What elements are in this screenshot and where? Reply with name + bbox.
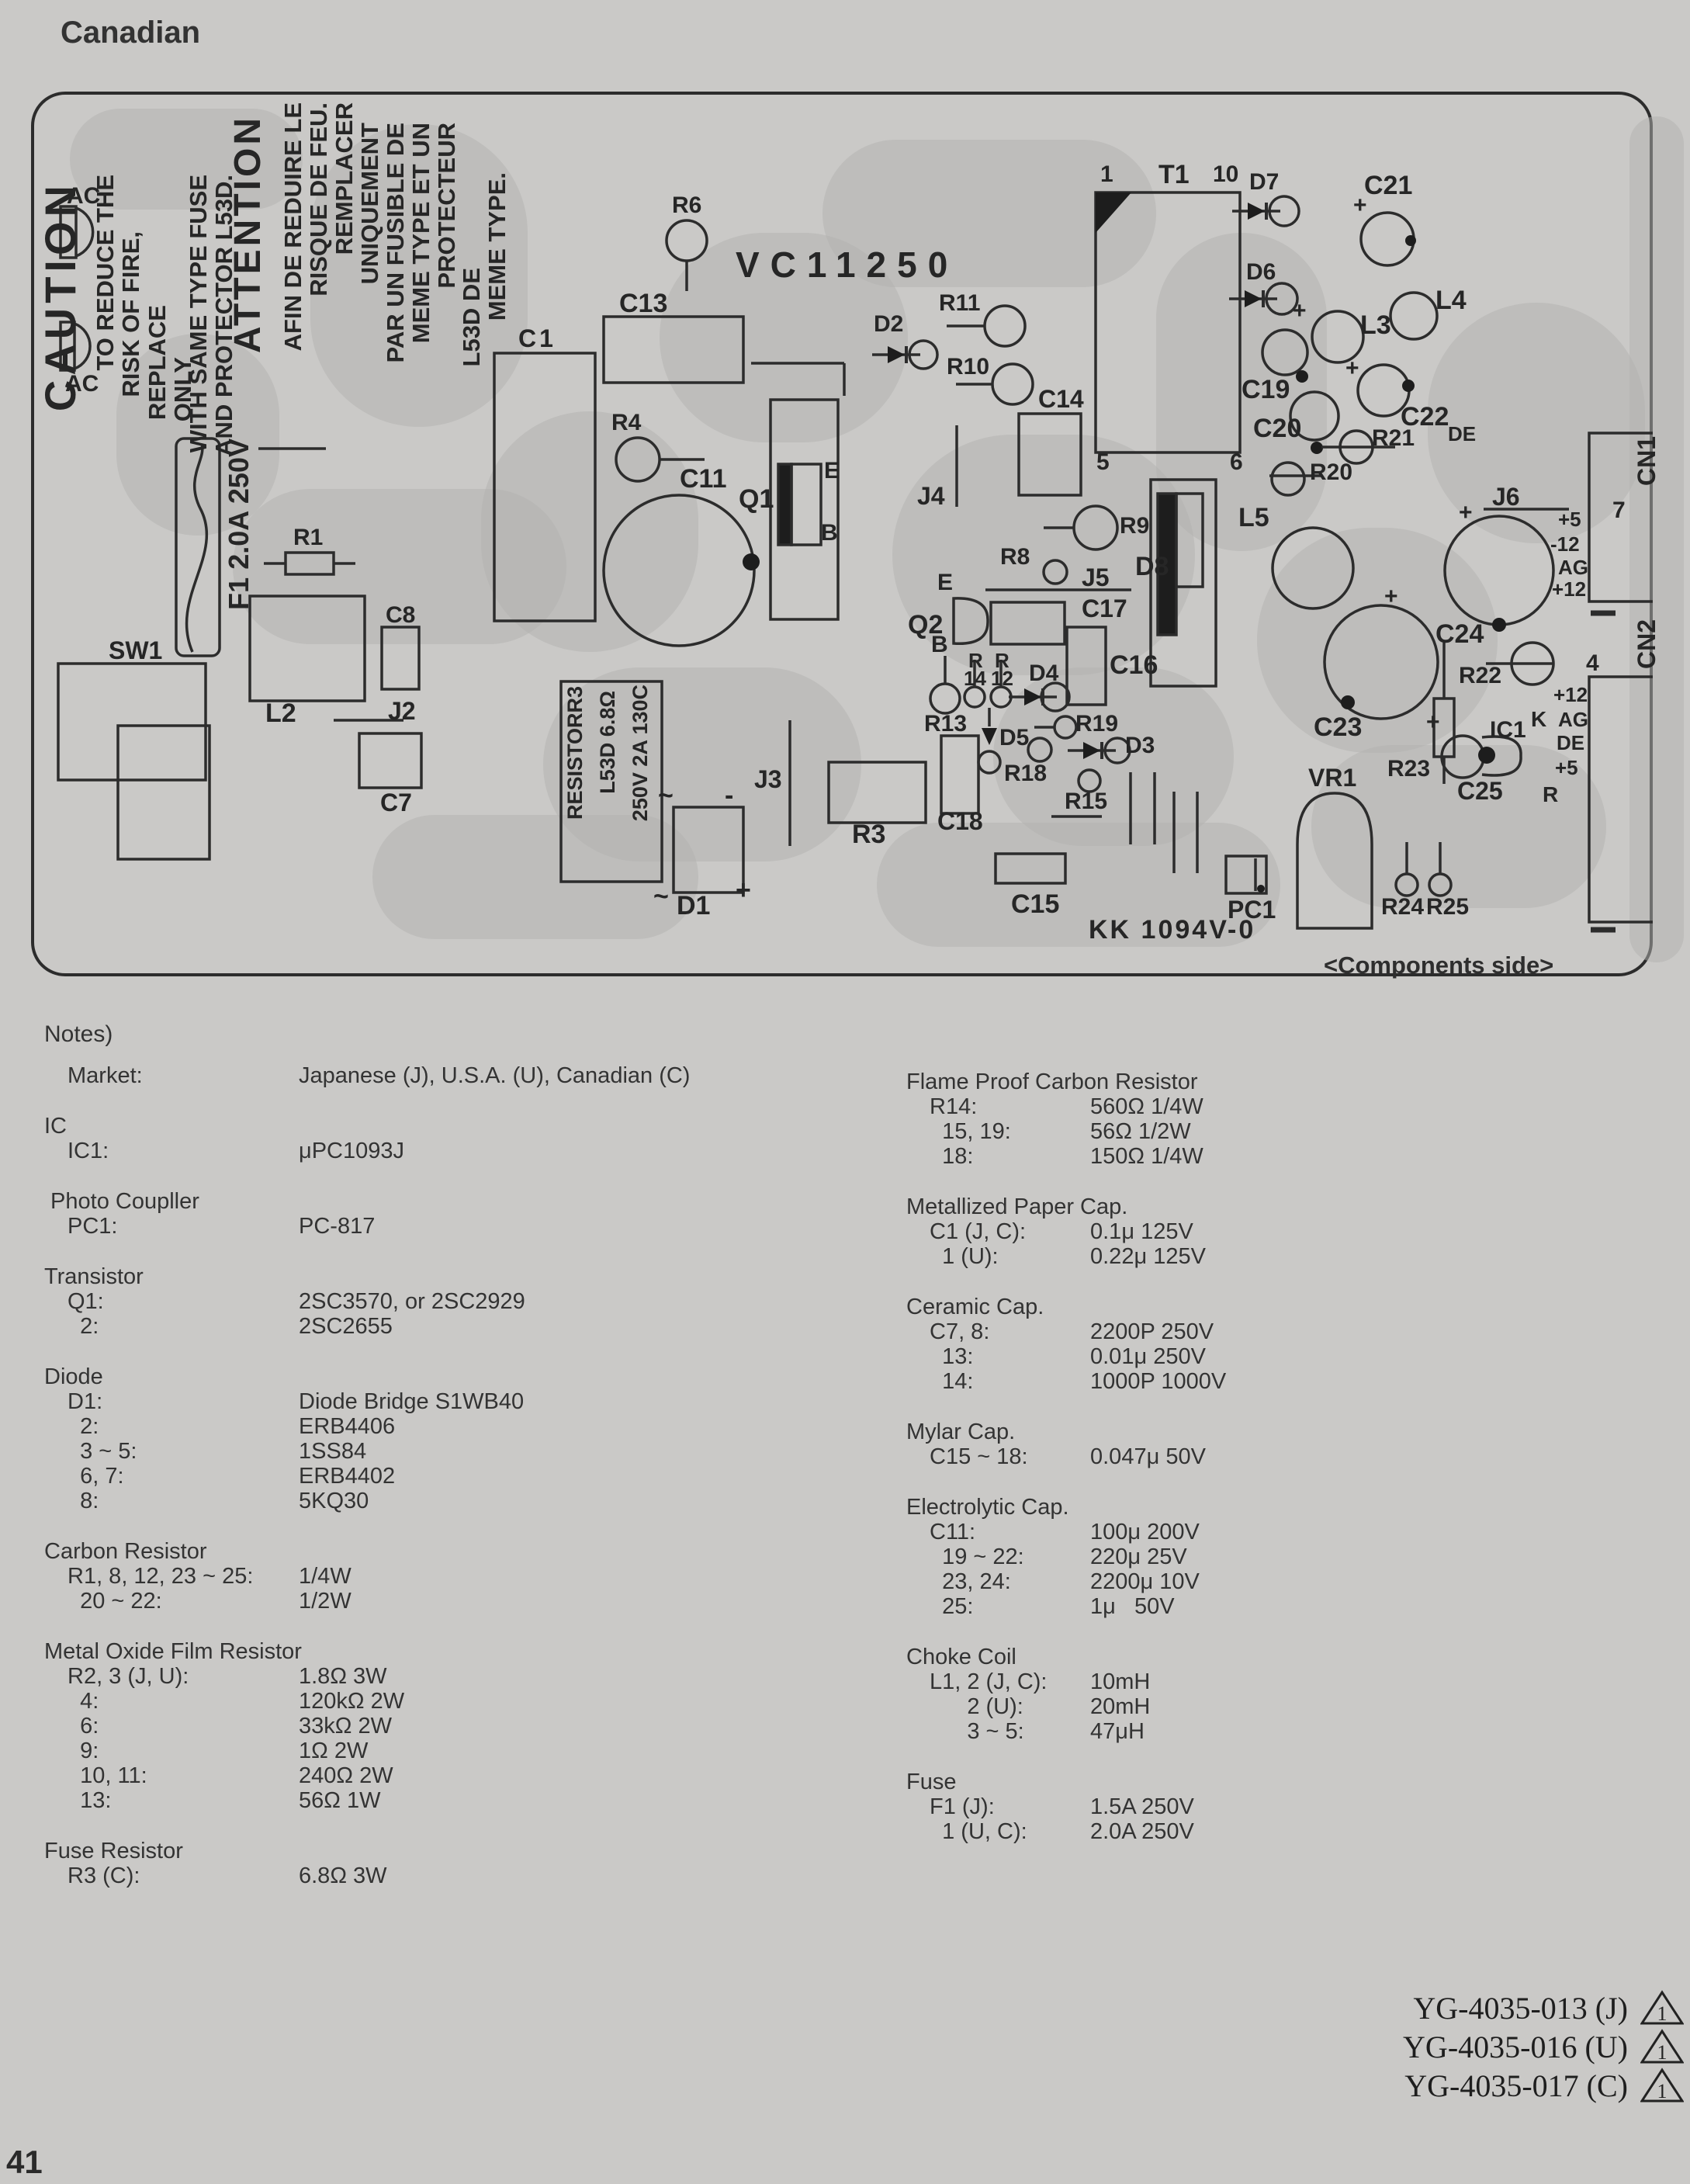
pcb-label: B xyxy=(821,522,838,545)
pcb-label: K xyxy=(1531,709,1546,730)
caution-heading: CAUTION xyxy=(39,181,82,411)
note-row-label: 8: xyxy=(68,1489,99,1513)
pcb-label: 250V 2A 130C xyxy=(630,685,651,821)
pcb-label: R24 xyxy=(1381,896,1424,919)
pcb-label: R15 xyxy=(1065,790,1107,813)
note-row-label: Market: xyxy=(68,1063,143,1088)
note-row-label: D1: xyxy=(68,1389,102,1414)
note-row-label: Q1: xyxy=(68,1289,104,1314)
note-section-heading: Transistor xyxy=(44,1264,836,1289)
pcb-label: RESISTORR3 xyxy=(565,686,586,820)
pcb-polarity-dot xyxy=(1296,370,1308,383)
note-row: 25:1μ 50V xyxy=(906,1594,1636,1619)
notes-right-column: Flame Proof Carbon ResistorR14:560Ω 1/4W… xyxy=(906,1069,1636,1844)
pcb-trace-blob xyxy=(372,815,698,939)
part-number: YG-4035-016 (U) xyxy=(1403,2029,1628,2065)
pcb-label: SW1 xyxy=(109,638,162,663)
note-section: Electrolytic Cap.C11:100μ 200V 19 ~ 22:2… xyxy=(906,1495,1636,1619)
notes-left-column: Market:Japanese (J), U.S.A. (U), Canadia… xyxy=(44,1063,836,1888)
components-side-label: <Components side> xyxy=(1324,952,1553,979)
note-row: 14:1000P 1000V xyxy=(906,1369,1636,1394)
page-number: 41 xyxy=(6,2144,43,2181)
note-row-value: 56Ω 1/2W xyxy=(1090,1119,1191,1144)
pcb-trace-blob xyxy=(481,411,698,652)
note-row-value: 1.8Ω 3W xyxy=(299,1664,387,1689)
pcb-label: C16 xyxy=(1110,652,1158,678)
pcb-label: C19 xyxy=(1242,376,1290,403)
note-section: Mylar Cap.C15 ~ 18:0.047μ 50V xyxy=(906,1420,1636,1469)
note-row-label: R14: xyxy=(930,1094,977,1119)
note-row-value: 1/4W xyxy=(299,1564,352,1589)
note-section-heading: Fuse Resistor xyxy=(44,1839,836,1863)
pcb-label: - xyxy=(725,782,733,809)
note-row: 18:150Ω 1/4W xyxy=(906,1144,1636,1169)
note-row-value: 0.01μ 250V xyxy=(1090,1344,1206,1369)
pcb-component-outline xyxy=(58,664,206,780)
pcb-polarity-dot xyxy=(1478,747,1495,764)
pcb-label: RISQUE DE FEU. xyxy=(306,102,331,296)
note-row-value: 20mH xyxy=(1090,1694,1150,1719)
pcb-label: C24 xyxy=(1435,621,1484,647)
pcb-label: 7 xyxy=(1612,499,1626,522)
pcb-label: D7 xyxy=(1249,171,1279,194)
board-code: VC11250 xyxy=(736,247,958,283)
pcb-label: C15 xyxy=(1011,891,1059,917)
connector-label-cn2: CN2 xyxy=(1634,619,1659,669)
part-number: YG-4035-017 (C) xyxy=(1404,2068,1628,2104)
note-row: IC1:μPC1093J xyxy=(44,1139,836,1163)
note-row-label: R3 (C): xyxy=(68,1863,140,1888)
pcb-label: D6 xyxy=(1246,261,1276,284)
note-row-label: 2 (U): xyxy=(930,1694,1023,1719)
connector-label-cn1: CN1 xyxy=(1634,436,1659,486)
part-number-row: YG-4035-016 (U)1 xyxy=(1319,2027,1684,2066)
note-section: Market:Japanese (J), U.S.A. (U), Canadia… xyxy=(44,1063,836,1088)
pcb-component-outline xyxy=(118,726,210,859)
pcb-label: Q1 xyxy=(739,486,774,512)
pcb-label: 14 xyxy=(964,668,986,688)
pcb-label: C8 xyxy=(386,604,415,627)
pcb-label: VR1 xyxy=(1308,765,1356,790)
note-row: R3 (C):6.8Ω 3W xyxy=(44,1863,836,1888)
warning-triangle-icon: 1 xyxy=(1640,2028,1684,2065)
pcb-label: R25 xyxy=(1426,896,1469,919)
pcb-polarity-dot xyxy=(743,553,760,570)
note-row-value: 1Ω 2W xyxy=(299,1739,368,1763)
pcb-label: J4 xyxy=(917,484,945,508)
pcb-label: MEME TYPE. xyxy=(485,172,509,321)
pcb-label: PAR UN FUSIBLE DE xyxy=(383,123,407,362)
note-row-label: C1 (J, C): xyxy=(930,1219,1026,1244)
pcb-label: C7 xyxy=(380,790,412,815)
pcb-polarity-dot xyxy=(1402,380,1415,392)
note-section-heading: Photo Coupller xyxy=(44,1189,836,1214)
note-row-label: 13: xyxy=(68,1788,111,1813)
note-row: 9:1Ω 2W xyxy=(44,1739,836,1763)
note-row-value: 2.0A 250V xyxy=(1090,1819,1194,1844)
note-row-value: ERB4402 xyxy=(299,1464,395,1489)
note-row: 19 ~ 22:220μ 25V xyxy=(906,1544,1636,1569)
note-row: R2, 3 (J, U):1.8Ω 3W xyxy=(44,1664,836,1689)
warning-triangle-number: 1 xyxy=(1657,2002,1667,2025)
pcb-label: AG xyxy=(1558,557,1588,577)
pcb-label: 5 xyxy=(1096,451,1110,474)
transformer-label: T1 xyxy=(1158,161,1190,188)
note-row-value: 2200P 250V xyxy=(1090,1319,1214,1344)
pcb-label: ~ xyxy=(658,782,674,809)
part-number-row: YG-4035-013 (J)1 xyxy=(1319,1988,1684,2027)
note-row: R14:560Ω 1/4W xyxy=(906,1094,1636,1119)
note-section: TransistorQ1:2SC3570, or 2SC2929 2:2SC26… xyxy=(44,1264,836,1339)
diode-icon xyxy=(1248,203,1265,220)
note-row-label: C11: xyxy=(930,1520,975,1544)
pcb-label: 12 xyxy=(991,668,1013,688)
note-row: C15 ~ 18:0.047μ 50V xyxy=(906,1444,1636,1469)
pcb-component-outline xyxy=(778,464,791,545)
note-row: F1 (J):1.5A 250V xyxy=(906,1794,1636,1819)
note-row: 2:ERB4406 xyxy=(44,1414,836,1439)
pcb-pad-circle xyxy=(992,364,1033,404)
note-section-heading: Flame Proof Carbon Resistor xyxy=(906,1069,1636,1094)
pcb-label: R8 xyxy=(1000,546,1030,569)
pcb-label: R10 xyxy=(947,355,989,379)
pcb-label: MEME TYPE ET UN xyxy=(409,123,433,343)
pcb-label: WITH SAME TYPE FUSE xyxy=(186,175,210,452)
pcb-label: L2 xyxy=(265,700,296,726)
note-row-value: PC-817 xyxy=(299,1214,375,1239)
note-section-heading: IC xyxy=(44,1114,836,1139)
pcb-label: + xyxy=(736,877,751,903)
note-section-heading: Metal Oxide Film Resistor xyxy=(44,1639,836,1664)
pcb-pad-circle xyxy=(930,684,960,713)
note-row-value: 1SS84 xyxy=(299,1439,366,1464)
pcb-label: J6 xyxy=(1492,484,1520,509)
note-row: 23, 24:2200μ 10V xyxy=(906,1569,1636,1594)
note-row: R1, 8, 12, 23 ~ 25:1/4W xyxy=(44,1564,836,1589)
note-row-label: 20 ~ 22: xyxy=(68,1589,162,1614)
note-row-label: 1 (U, C): xyxy=(930,1819,1027,1844)
pcb-label: 1 xyxy=(1100,163,1113,186)
pcb-label: + xyxy=(1459,501,1473,525)
pcb-label: + xyxy=(1384,585,1398,608)
pcb-component-outline xyxy=(941,736,978,813)
note-row-label: 18: xyxy=(930,1144,973,1169)
note-row: C7, 8:2200P 250V xyxy=(906,1319,1636,1344)
pcb-label: AFIN DE REDUIRE LE xyxy=(281,102,305,351)
pcb-label: + xyxy=(1426,711,1440,734)
note-row-value: 120kΩ 2W xyxy=(299,1689,404,1714)
pcb-label: L53D DE xyxy=(459,268,483,366)
pcb-label: L5 xyxy=(1238,504,1269,531)
note-section: Ceramic Cap.C7, 8:2200P 250V 13:0.01μ 25… xyxy=(906,1295,1636,1394)
note-row-value: 1.5A 250V xyxy=(1090,1794,1194,1819)
note-section-heading: Diode xyxy=(44,1364,836,1389)
pcb-label: L3 xyxy=(1360,312,1391,338)
pcb-label: L53D 6.8Ω xyxy=(597,691,618,794)
pcb-label: C21 xyxy=(1364,172,1412,199)
note-section: ICIC1:μPC1093J xyxy=(44,1114,836,1163)
pcb-label: 6 xyxy=(1230,451,1243,474)
pcb-pad-circle xyxy=(667,220,707,261)
pcb-label: DE xyxy=(1557,733,1584,753)
pcb-label: R11 xyxy=(939,292,980,315)
pcb-label: R3 xyxy=(852,821,885,848)
note-row-label: C7, 8: xyxy=(930,1319,989,1344)
pcb-label: R6 xyxy=(672,194,701,217)
note-section: Flame Proof Carbon ResistorR14:560Ω 1/4W… xyxy=(906,1069,1636,1169)
note-row-value: 2SC2655 xyxy=(299,1314,393,1339)
pcb-label: + xyxy=(1345,357,1359,380)
note-row: 13:0.01μ 250V xyxy=(906,1344,1636,1369)
note-row: 2 (U):20mH xyxy=(906,1694,1636,1719)
note-section: Choke CoilL1, 2 (J, C):10mH 2 (U):20mH 3… xyxy=(906,1645,1636,1744)
note-section-heading: Choke Coil xyxy=(906,1645,1636,1669)
note-row-label: F1 (J): xyxy=(930,1794,995,1819)
pcb-component-outline xyxy=(791,464,821,545)
pcb-label: +5 xyxy=(1558,509,1581,529)
note-row: PC1:PC-817 xyxy=(44,1214,836,1239)
note-row: 8:5KQ30 xyxy=(44,1489,836,1513)
pcb-label: D5 xyxy=(999,726,1029,750)
note-row-label: 2: xyxy=(68,1414,99,1439)
warning-triangle-icon: 1 xyxy=(1640,1989,1684,2026)
pcb-label: D3 xyxy=(1125,734,1155,757)
pcb-label: R20 xyxy=(1310,461,1352,484)
note-row-value: 2200μ 10V xyxy=(1090,1569,1200,1594)
pcb-pad-circle xyxy=(1390,293,1437,339)
pcb-label: R4 xyxy=(611,411,641,435)
note-row-value: Japanese (J), U.S.A. (U), Canadian (C) xyxy=(299,1063,690,1088)
pcb-label: R13 xyxy=(924,712,967,736)
note-row-label: 25: xyxy=(930,1594,973,1619)
pcb-component-outline xyxy=(359,733,421,788)
pcb-label: R21 xyxy=(1372,427,1415,450)
note-row: 6:33kΩ 2W xyxy=(44,1714,836,1739)
footer-part-numbers: YG-4035-013 (J)1YG-4035-016 (U)1YG-4035-… xyxy=(1319,1988,1684,2105)
note-row: 20 ~ 22:1/2W xyxy=(44,1589,836,1614)
note-row-value: 1/2W xyxy=(299,1589,352,1614)
note-row-value: μPC1093J xyxy=(299,1139,404,1163)
note-section: FuseF1 (J):1.5A 250V 1 (U, C):2.0A 250V xyxy=(906,1770,1636,1844)
note-row-value: 5KQ30 xyxy=(299,1489,369,1513)
note-row-label: 1 (U): xyxy=(930,1244,999,1269)
note-row: 13:56Ω 1W xyxy=(44,1788,836,1813)
note-row-label: 3 ~ 5: xyxy=(930,1719,1024,1744)
pcb-label: J5 xyxy=(1082,565,1110,590)
warning-triangle-number: 1 xyxy=(1657,2041,1667,2064)
note-section: DiodeD1:Diode Bridge S1WB40 2:ERB4406 3 … xyxy=(44,1364,836,1513)
pcb-label: +5 xyxy=(1555,757,1578,778)
note-row-label: 4: xyxy=(68,1689,99,1714)
attention-heading: ATTENTION xyxy=(230,115,267,353)
pcb-label: DE xyxy=(1448,424,1476,444)
note-row: 1 (U, C):2.0A 250V xyxy=(906,1819,1636,1844)
pcb-label: +12 xyxy=(1553,685,1588,705)
note-row-label: 14: xyxy=(930,1369,973,1394)
pcb-polarity-dot xyxy=(1341,695,1355,709)
part-number: YG-4035-013 (J) xyxy=(1413,1990,1628,2026)
note-row-value: 100μ 200V xyxy=(1090,1520,1200,1544)
note-section-heading: Mylar Cap. xyxy=(906,1420,1636,1444)
warning-triangle-number: 1 xyxy=(1657,2080,1667,2103)
pcb-label: +12 xyxy=(1552,579,1586,599)
pcb-label: B xyxy=(931,633,948,657)
note-section: Photo CoupllerPC1:PC-817 xyxy=(44,1189,836,1239)
note-row-value: 1000P 1000V xyxy=(1090,1369,1226,1394)
pcb-label: R9 xyxy=(1120,515,1149,538)
pcb-label: R1 xyxy=(293,526,323,549)
pcb-label: 4 xyxy=(1586,652,1599,675)
note-row-label: 6, 7: xyxy=(68,1464,124,1489)
pcb-polarity-dot xyxy=(1405,235,1416,246)
pcb-label: RISK OF FIRE, xyxy=(119,231,143,397)
note-row-value: 560Ω 1/4W xyxy=(1090,1094,1203,1119)
note-row-label: R2, 3 (J, U): xyxy=(68,1664,189,1689)
pcb-label: E xyxy=(824,459,840,483)
pcb-label: IC1 xyxy=(1490,719,1526,742)
pcb-polarity-dot xyxy=(1257,885,1265,893)
pcb-label: TO REDUCE THE xyxy=(93,175,117,371)
note-row-value: 0.1μ 125V xyxy=(1090,1219,1193,1244)
note-row: 6, 7:ERB4402 xyxy=(44,1464,836,1489)
pcb-label: 10 xyxy=(1213,163,1238,186)
pcb-label: REMPLACER xyxy=(332,102,356,255)
pcb-label: PC1 xyxy=(1228,897,1276,922)
pcb-label: C11 xyxy=(680,466,727,492)
pcb-polarity-dot xyxy=(1311,442,1323,454)
note-section: Carbon ResistorR1, 8, 12, 23 ~ 25:1/4W 2… xyxy=(44,1539,836,1614)
note-row-value: Diode Bridge S1WB40 xyxy=(299,1389,524,1414)
pcb-label: ~ xyxy=(653,883,669,910)
pcb-label: PROTECTEUR xyxy=(435,123,459,289)
note-row-label: 10, 11: xyxy=(68,1763,147,1788)
pcb-trace-blob xyxy=(1629,116,1684,962)
part-number-row: YG-4035-017 (C)1 xyxy=(1319,2066,1684,2105)
note-section: Fuse ResistorR3 (C):6.8Ω 3W xyxy=(44,1839,836,1888)
pcb-label: C1 xyxy=(518,326,556,351)
pcb-label: D1 xyxy=(677,893,710,919)
notes-title: Notes) xyxy=(44,1021,113,1048)
pcb-label: D4 xyxy=(1029,662,1058,685)
note-row-label: 2: xyxy=(68,1314,99,1339)
note-row: 10, 11:240Ω 2W xyxy=(44,1763,836,1788)
note-row-value: 47μH xyxy=(1090,1719,1145,1744)
note-row-label: 15, 19: xyxy=(930,1119,1011,1144)
note-row-label: 13: xyxy=(930,1344,973,1369)
note-section-heading: Metallized Paper Cap. xyxy=(906,1194,1636,1219)
note-row-label: R1, 8, 12, 23 ~ 25: xyxy=(68,1564,253,1589)
note-row-label: 6: xyxy=(68,1714,99,1739)
note-row: Market:Japanese (J), U.S.A. (U), Canadia… xyxy=(44,1063,836,1088)
pcb-label: + xyxy=(1293,300,1307,323)
note-row: 1 (U):0.22μ 125V xyxy=(906,1244,1636,1269)
pcb-polarity-dot xyxy=(1492,618,1506,632)
note-section-heading: Carbon Resistor xyxy=(44,1539,836,1564)
note-row-label: 9: xyxy=(68,1739,99,1763)
note-row-label: 19 ~ 22: xyxy=(930,1544,1024,1569)
note-row-value: 10mH xyxy=(1090,1669,1150,1694)
note-row-label: IC1: xyxy=(68,1139,109,1163)
pcb-label: L4 xyxy=(1435,287,1467,314)
pcb-label: D8 xyxy=(1135,553,1169,580)
pcb-label: C20 xyxy=(1253,415,1301,442)
note-row: D1:Diode Bridge S1WB40 xyxy=(44,1389,836,1414)
pcb-label: R xyxy=(1543,784,1558,806)
pcb-label: R23 xyxy=(1387,757,1430,781)
note-row: C1 (J, C):0.1μ 125V xyxy=(906,1219,1636,1244)
pcb-label: UNIQUEMENT xyxy=(358,123,382,284)
note-section: Metallized Paper Cap.C1 (J, C):0.1μ 125V… xyxy=(906,1194,1636,1269)
note-row-value: 0.047μ 50V xyxy=(1090,1444,1206,1469)
note-row: 4:120kΩ 2W xyxy=(44,1689,836,1714)
note-section: Metal Oxide Film ResistorR2, 3 (J, U):1.… xyxy=(44,1639,836,1813)
note-row: 3 ~ 5:1SS84 xyxy=(44,1439,836,1464)
note-section-heading: Ceramic Cap. xyxy=(906,1295,1636,1319)
pcb-label: C17 xyxy=(1082,596,1127,621)
note-row-label: 3 ~ 5: xyxy=(68,1439,137,1464)
note-row-value: 2SC3570, or 2SC2929 xyxy=(299,1289,525,1314)
note-row-value: ERB4406 xyxy=(299,1414,395,1439)
pcb-label: -12 xyxy=(1550,534,1580,554)
note-row: 3 ~ 5:47μH xyxy=(906,1719,1636,1744)
note-row: L1, 2 (J, C):10mH xyxy=(906,1669,1636,1694)
pcb-label: R18 xyxy=(1004,762,1047,785)
note-row-label: PC1: xyxy=(68,1214,117,1239)
pcb-label: R19 xyxy=(1075,712,1118,736)
note-section-heading: Electrolytic Cap. xyxy=(906,1495,1636,1520)
fuse-label: F1 2.0A 250V xyxy=(225,439,253,610)
pcb-label: C14 xyxy=(1038,387,1084,411)
document-page: Canadian ACACSW1R1L2J2C8C7C1C13R4C11Q1EB… xyxy=(0,0,1690,2184)
pcb-label: J3 xyxy=(754,767,782,792)
note-row-value: 56Ω 1W xyxy=(299,1788,381,1813)
note-row-value: 33kΩ 2W xyxy=(299,1714,392,1739)
note-row-value: 1μ 50V xyxy=(1090,1594,1175,1619)
pcb-label: C23 xyxy=(1314,714,1362,740)
note-row-label: L1, 2 (J, C): xyxy=(930,1669,1048,1694)
note-row: 2:2SC2655 xyxy=(44,1314,836,1339)
pcb-label: E xyxy=(937,571,953,595)
pcb-label: C13 xyxy=(619,290,667,317)
pcb-label: D2 xyxy=(874,313,903,336)
pcb-label: R22 xyxy=(1459,664,1501,688)
pcb-label: C25 xyxy=(1457,778,1503,803)
pcb-label: + xyxy=(1353,194,1367,217)
pcb-label: C18 xyxy=(937,809,983,834)
note-row: C11:100μ 200V xyxy=(906,1520,1636,1544)
note-row-label: 23, 24: xyxy=(930,1569,1011,1594)
note-row-value: 150Ω 1/4W xyxy=(1090,1144,1203,1169)
warning-triangle-icon: 1 xyxy=(1640,2067,1684,2104)
note-row-label: C15 ~ 18: xyxy=(930,1444,1028,1469)
pcb-pad-circle xyxy=(985,306,1025,346)
note-row: Q1:2SC3570, or 2SC2929 xyxy=(44,1289,836,1314)
note-row-value: 0.22μ 125V xyxy=(1090,1244,1206,1269)
pcb-label: J2 xyxy=(388,699,416,723)
pcb-label: REPLACE xyxy=(145,305,169,420)
note-row-value: 240Ω 2W xyxy=(299,1763,393,1788)
pcb-label: AG xyxy=(1558,709,1588,730)
note-row: 15, 19:56Ω 1/2W xyxy=(906,1119,1636,1144)
note-section-heading: Fuse xyxy=(906,1770,1636,1794)
note-row-value: 220μ 25V xyxy=(1090,1544,1187,1569)
note-row-value: 6.8Ω 3W xyxy=(299,1863,387,1888)
